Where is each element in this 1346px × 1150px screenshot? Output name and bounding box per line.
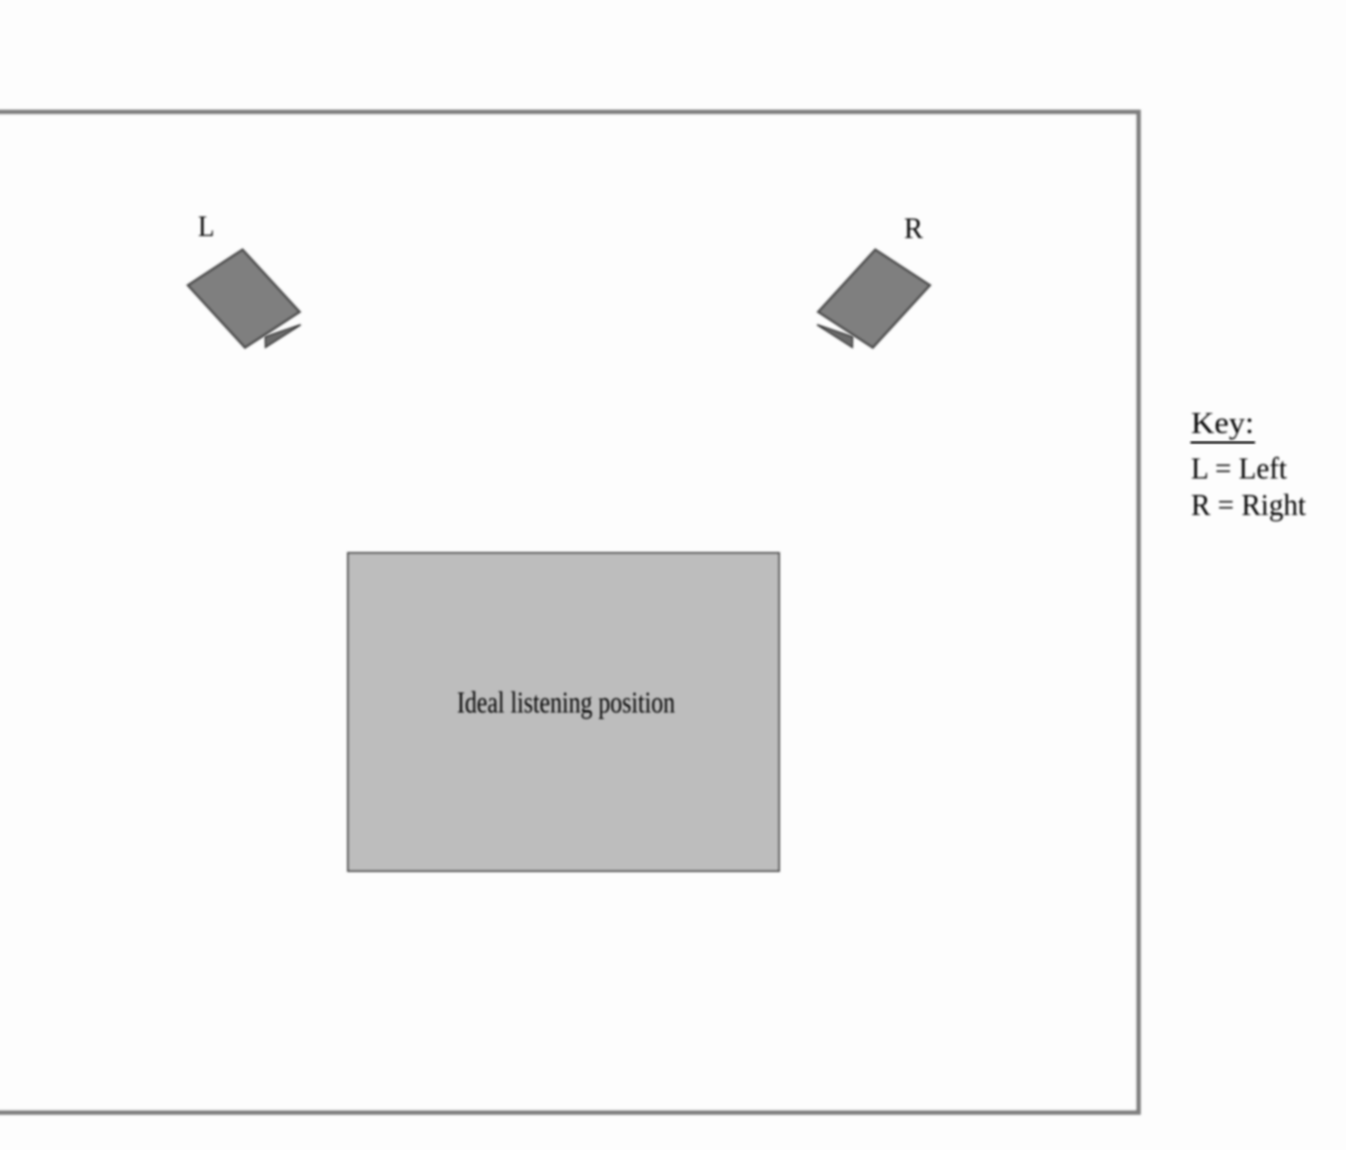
svg-text:L: L — [198, 210, 215, 243]
svg-text:Key:: Key: — [1191, 405, 1254, 440]
svg-text:Ideal listening position: Ideal listening position — [457, 685, 675, 720]
svg-text:R: R — [904, 212, 923, 245]
svg-text:L = Left: L = Left — [1191, 451, 1287, 486]
svg-text:R = Right: R = Right — [1191, 487, 1306, 522]
